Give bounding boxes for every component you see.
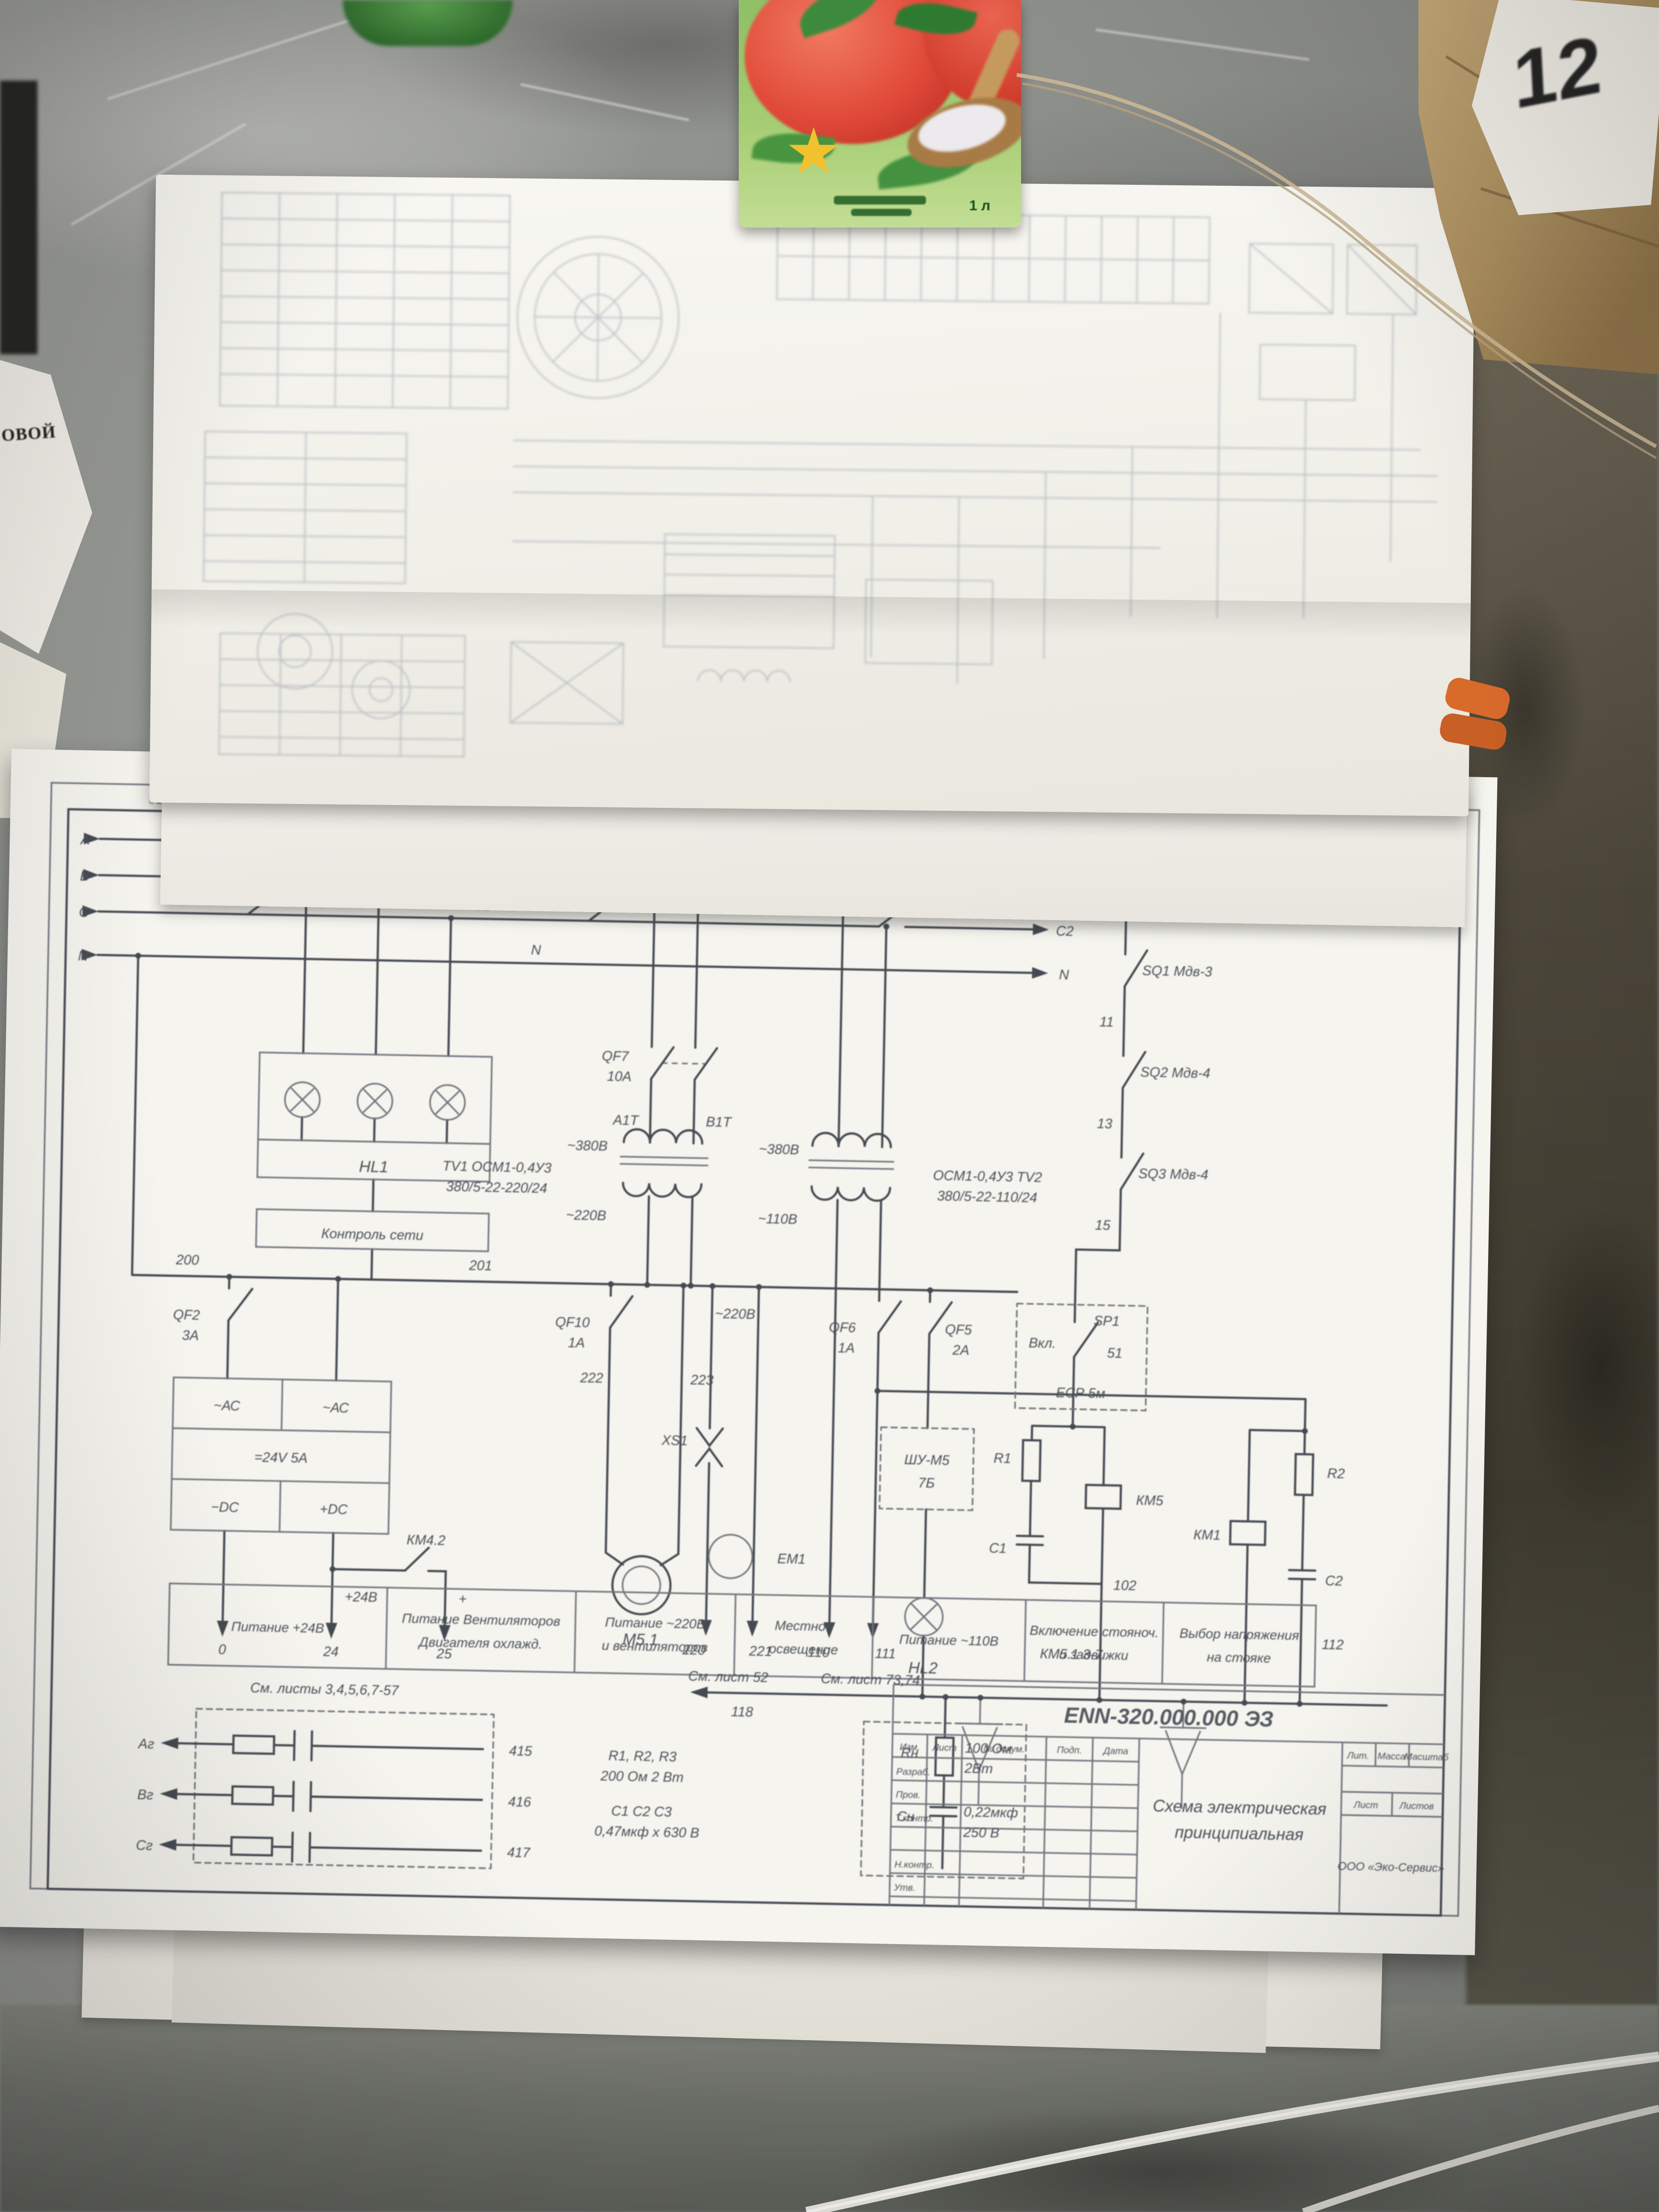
schematic-label: Вг xyxy=(137,1787,154,1803)
schematic-label: Вкл. xyxy=(1029,1335,1056,1351)
schematic-label: Лист xyxy=(931,1743,957,1754)
schematic-label: 0 xyxy=(218,1642,226,1658)
schematic-label: 200 xyxy=(175,1252,199,1268)
schematic-label: Утв. xyxy=(893,1882,915,1893)
schematic-label: См. листы 3,4,5,6,7-57 xyxy=(250,1681,399,1699)
schematic-label: Разраб. xyxy=(896,1767,930,1778)
schematic-label: А xyxy=(80,832,90,848)
schematic-label: 250 В xyxy=(962,1825,999,1840)
schematic-label: КМ4.2 xyxy=(407,1532,445,1549)
tv2-transformer-circuit xyxy=(800,889,1315,1639)
schematic-label: 10А xyxy=(607,1069,632,1085)
schematic-label: См. лист 52 xyxy=(688,1669,768,1685)
carton-volume-label: 1 л xyxy=(969,199,990,215)
green-bottle-top xyxy=(343,0,513,46)
schematic-label: М5.1 xyxy=(623,1631,659,1649)
schematic-label: N xyxy=(1059,967,1070,983)
schematic-label: Подп. xyxy=(1057,1745,1082,1756)
schematic-label: + xyxy=(458,1591,467,1607)
schematic-label: Дата xyxy=(1102,1745,1128,1756)
schematic-label: ТV1 ОСМ1-0,4У3 xyxy=(443,1159,552,1176)
schematic-label: Лит. xyxy=(1346,1750,1369,1761)
schematic-label: XS1 xyxy=(661,1433,688,1449)
carton-caption-bar xyxy=(851,209,912,216)
schematic-label: +24В xyxy=(345,1589,377,1605)
schematic-label: Изм. xyxy=(900,1742,920,1753)
schematic-label: +DC xyxy=(320,1502,348,1517)
schematic-label: С1 xyxy=(989,1541,1007,1557)
schematic-label: на стояке xyxy=(1207,1649,1271,1666)
schematic-label: QF10 xyxy=(555,1315,589,1331)
handwritten-text: 12 xyxy=(1511,16,1604,128)
schematic-label: Пров. xyxy=(896,1790,921,1801)
schematic-label: 2А xyxy=(952,1343,970,1358)
hl1-lamp-box xyxy=(256,1052,492,1251)
schematic-label: ШУ-М5 xyxy=(904,1452,950,1468)
schematic-label: ~220В xyxy=(566,1207,606,1224)
schematic-label: HL1 xyxy=(359,1158,389,1176)
schematic-label: 24 xyxy=(323,1644,339,1660)
schematic-label: SQ3 Мдв-4 xyxy=(1138,1166,1208,1183)
schematic-label: С2 xyxy=(1325,1573,1343,1589)
schematic-label: Местное xyxy=(775,1618,833,1634)
schematic-label: ~АС xyxy=(322,1400,349,1416)
schematic-label: 25 xyxy=(436,1646,453,1662)
schematic-label: Т.контр. xyxy=(895,1813,934,1824)
faint-schematic-print xyxy=(149,175,1475,817)
schematic-label: 200 Ом 2 Вт xyxy=(600,1768,684,1785)
schematic-label: 118 xyxy=(731,1704,753,1720)
schematic-label: ~380В xyxy=(759,1142,799,1158)
schematic-label: 3А xyxy=(182,1328,199,1344)
schematic-label: 112 xyxy=(1322,1637,1344,1653)
doc-number: ЕNN-320.000.000 ЭЗ xyxy=(1064,1703,1274,1731)
schematic-label: 380/5-22-110/24 xyxy=(937,1189,1037,1206)
schematic-label: −DC xyxy=(211,1500,239,1515)
bus-220v xyxy=(132,956,1023,1292)
dark-object-left xyxy=(0,81,37,354)
schematic-label: С xyxy=(79,905,89,920)
schematic-label: Масса xyxy=(1378,1751,1406,1762)
schematic-label: 223 xyxy=(690,1372,714,1388)
schematic-label: Питание ~220В xyxy=(605,1615,706,1632)
schematic-label: КМ1 xyxy=(1193,1527,1221,1543)
socket-heater-circuit xyxy=(693,1286,759,1628)
schematic-label: SQ2 Мдв-4 xyxy=(1140,1065,1210,1082)
schematic-label: КМ5.1 3-7 xyxy=(1040,1646,1103,1663)
schematic-label: С2 xyxy=(1056,924,1074,939)
schematic-label: Аг xyxy=(137,1736,155,1752)
schematic-label: 11 xyxy=(1099,1014,1114,1030)
schematic-label: ~110В xyxy=(758,1211,797,1227)
company-name: ООО «Эко-Сервис» xyxy=(1337,1860,1444,1875)
schematic-label: QF7 xyxy=(602,1048,629,1064)
schematic-label: ~380В xyxy=(567,1138,608,1154)
schematic-label: 1А xyxy=(838,1340,855,1356)
schematic-label: R1 xyxy=(994,1451,1011,1467)
photo-scene: ОВОЙ xyxy=(0,0,1659,2212)
schematic-label: Лист xyxy=(1353,1800,1378,1811)
schematic-label: 0,22мкф xyxy=(963,1804,1018,1821)
schematic-label: N xyxy=(531,943,541,958)
carton-caption-bar xyxy=(834,196,926,204)
schematic-label: QF6 xyxy=(829,1320,856,1336)
juice-carton: 1 л xyxy=(739,0,1021,228)
schematic-label: 110 xyxy=(807,1645,829,1660)
schematic-label: Выбор напряжения xyxy=(1179,1626,1299,1643)
schematic-label: 0,47мкф х 630 В xyxy=(594,1824,699,1841)
schematic-label: N xyxy=(78,949,88,964)
schematic-label: 222 xyxy=(579,1370,603,1386)
cooling-motor-circuit xyxy=(604,1284,683,1615)
schematic-label: 13 xyxy=(1097,1116,1113,1132)
schematic-label: ~АС xyxy=(214,1398,240,1414)
schematic-label: 102 xyxy=(1113,1578,1137,1594)
schematic-label: R2 xyxy=(1327,1466,1345,1482)
schematic-label: КМ5 xyxy=(1136,1493,1164,1509)
schematic-drawing: ЕNN-320.000.000 ЭЗ Схема электрическая п… xyxy=(0,749,1497,1955)
schematic-label: Контроль сети xyxy=(321,1226,423,1243)
schematic-label: ЕСР 5м xyxy=(1056,1385,1106,1402)
doc-title-line2: принципиальная xyxy=(1175,1824,1304,1844)
schematic-label: В xyxy=(80,868,89,884)
schematic-label: 7Б xyxy=(918,1476,935,1491)
schematic-label: 51 xyxy=(1107,1346,1123,1361)
schematic-label: 417 xyxy=(507,1845,531,1861)
floor-shadow-right xyxy=(1466,331,1659,2212)
drawing-frame xyxy=(48,809,1461,1916)
schematic-label: С1 С2 С3 xyxy=(611,1803,672,1820)
schematic-label: В1Т xyxy=(706,1114,733,1130)
schematic-label: =24V 5А xyxy=(254,1450,308,1466)
schematic-label: HL2 xyxy=(908,1659,938,1677)
psu-circuit xyxy=(169,1276,451,1630)
schematic-label: 221 xyxy=(748,1644,772,1659)
tv1-transformer-circuit xyxy=(618,849,721,1286)
schematic-label: 2Вт xyxy=(964,1761,993,1777)
schematic-label: Включение стояноч. xyxy=(1030,1623,1159,1640)
schematic-sheet-top xyxy=(149,175,1475,817)
schematic-label: Питание +24В xyxy=(231,1619,324,1636)
schematic-label: Сг xyxy=(136,1838,153,1854)
schematic-label: 415 xyxy=(509,1743,533,1759)
schematic-label: SP1 xyxy=(1094,1313,1120,1329)
schematic-label: ЕМ1 xyxy=(777,1551,806,1567)
schematic-label: № докум. xyxy=(983,1743,1025,1755)
schematic-label: R1, R2, R3 xyxy=(608,1748,677,1765)
schematic-label: 220 xyxy=(682,1642,706,1658)
schematic-label: QF5 xyxy=(945,1322,972,1338)
schematic-label: 201 xyxy=(469,1258,493,1274)
schematic-sheet-main: ЕNN-320.000.000 ЭЗ Схема электрическая п… xyxy=(0,749,1497,1955)
schematic-label: А1Т xyxy=(612,1113,640,1129)
schematic-label: 15 xyxy=(1095,1217,1111,1233)
schematic-label: 111 xyxy=(875,1646,896,1662)
schematic-label: Питание ~110В xyxy=(899,1632,998,1649)
schematic-label: Питание Вентиляторов xyxy=(402,1611,561,1628)
schematic-label: ~220В xyxy=(715,1306,755,1322)
schematic-label: Листов xyxy=(1398,1801,1434,1812)
schematic-label: Масштаб xyxy=(1404,1751,1449,1763)
schematic-label: QF2 xyxy=(173,1307,200,1323)
schematic-label: См. лист 73,74 xyxy=(821,1671,920,1688)
schematic-label: 380/5-22-220/24 xyxy=(446,1179,547,1196)
scrap-text-fragment: ОВОЙ xyxy=(1,421,57,447)
schematic-label: 416 xyxy=(508,1794,531,1810)
sheet-outer-border xyxy=(30,783,1479,1916)
rc-snubber-detail-box xyxy=(176,1708,494,1868)
doc-title-line1: Схема электрическая xyxy=(1153,1797,1326,1818)
schematic-label: SQ1 Мдв-3 xyxy=(1142,963,1212,980)
schematic-label: ОСМ1-0,4У3 ТV2 xyxy=(933,1168,1042,1185)
schematic-label: Н.контр. xyxy=(894,1859,935,1871)
schematic-label: 1А xyxy=(568,1335,585,1351)
